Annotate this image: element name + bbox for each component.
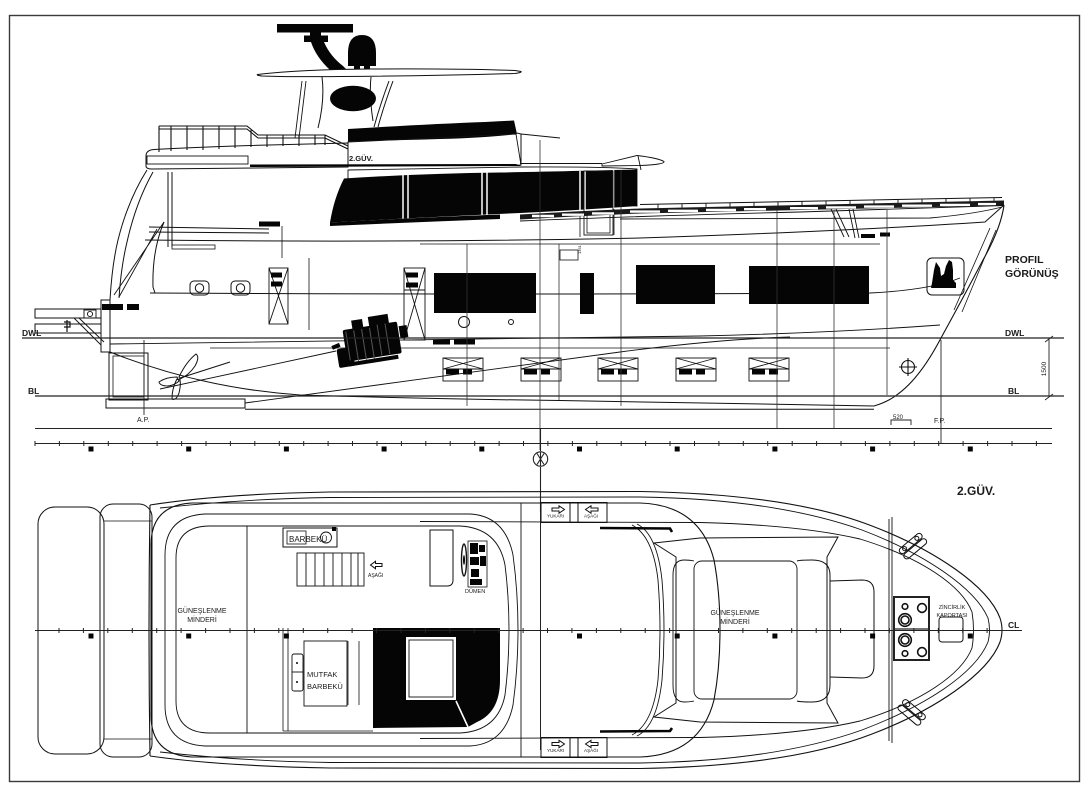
svg-text:MİNDERİ: MİNDERİ bbox=[720, 617, 750, 626]
svg-text:1500: 1500 bbox=[1041, 361, 1048, 376]
svg-text:520: 520 bbox=[893, 415, 904, 421]
svg-text:DWL: DWL bbox=[1005, 328, 1024, 338]
svg-text:GÜNEŞLENME: GÜNEŞLENME bbox=[710, 609, 759, 617]
svg-text:CL: CL bbox=[1008, 620, 1019, 630]
svg-text:GÜNEŞLENME: GÜNEŞLENME bbox=[177, 607, 226, 615]
svg-text:PROFIL: PROFIL bbox=[1005, 254, 1044, 266]
svg-text:A.P.: A.P. bbox=[137, 417, 149, 424]
svg-text:MUTFAK: MUTFAK bbox=[307, 670, 337, 679]
svg-text:2.GÜV.: 2.GÜV. bbox=[957, 483, 995, 498]
svg-text:BL: BL bbox=[1008, 386, 1019, 396]
svg-text:BL: BL bbox=[28, 386, 39, 396]
svg-text:F.P.: F.P. bbox=[934, 418, 945, 425]
svg-text:MİNDERİ: MİNDERİ bbox=[187, 615, 217, 624]
svg-text:1351: 1351 bbox=[577, 244, 582, 254]
svg-text:AŞAĞI: AŞAĞI bbox=[584, 747, 598, 753]
svg-text:AŞAĞI: AŞAĞI bbox=[368, 572, 383, 579]
svg-text:BARBEKÜ: BARBEKÜ bbox=[307, 682, 343, 691]
svg-text:2.GÜV.: 2.GÜV. bbox=[349, 154, 373, 163]
svg-text:BARBEKÜ: BARBEKÜ bbox=[289, 535, 327, 544]
svg-text:YUKARI: YUKARI bbox=[547, 514, 564, 519]
svg-text:KAPORTASI: KAPORTASI bbox=[937, 613, 968, 619]
svg-text:GÖRÜNÜŞ: GÖRÜNÜŞ bbox=[1005, 267, 1059, 280]
svg-text:DWL: DWL bbox=[22, 328, 41, 338]
svg-text:DÜMEN: DÜMEN bbox=[465, 588, 485, 595]
svg-text:AŞAĞI: AŞAĞI bbox=[584, 513, 598, 519]
svg-text:ZİNCİRLİK: ZİNCİRLİK bbox=[939, 604, 966, 611]
svg-text:YUKARI: YUKARI bbox=[547, 748, 564, 753]
